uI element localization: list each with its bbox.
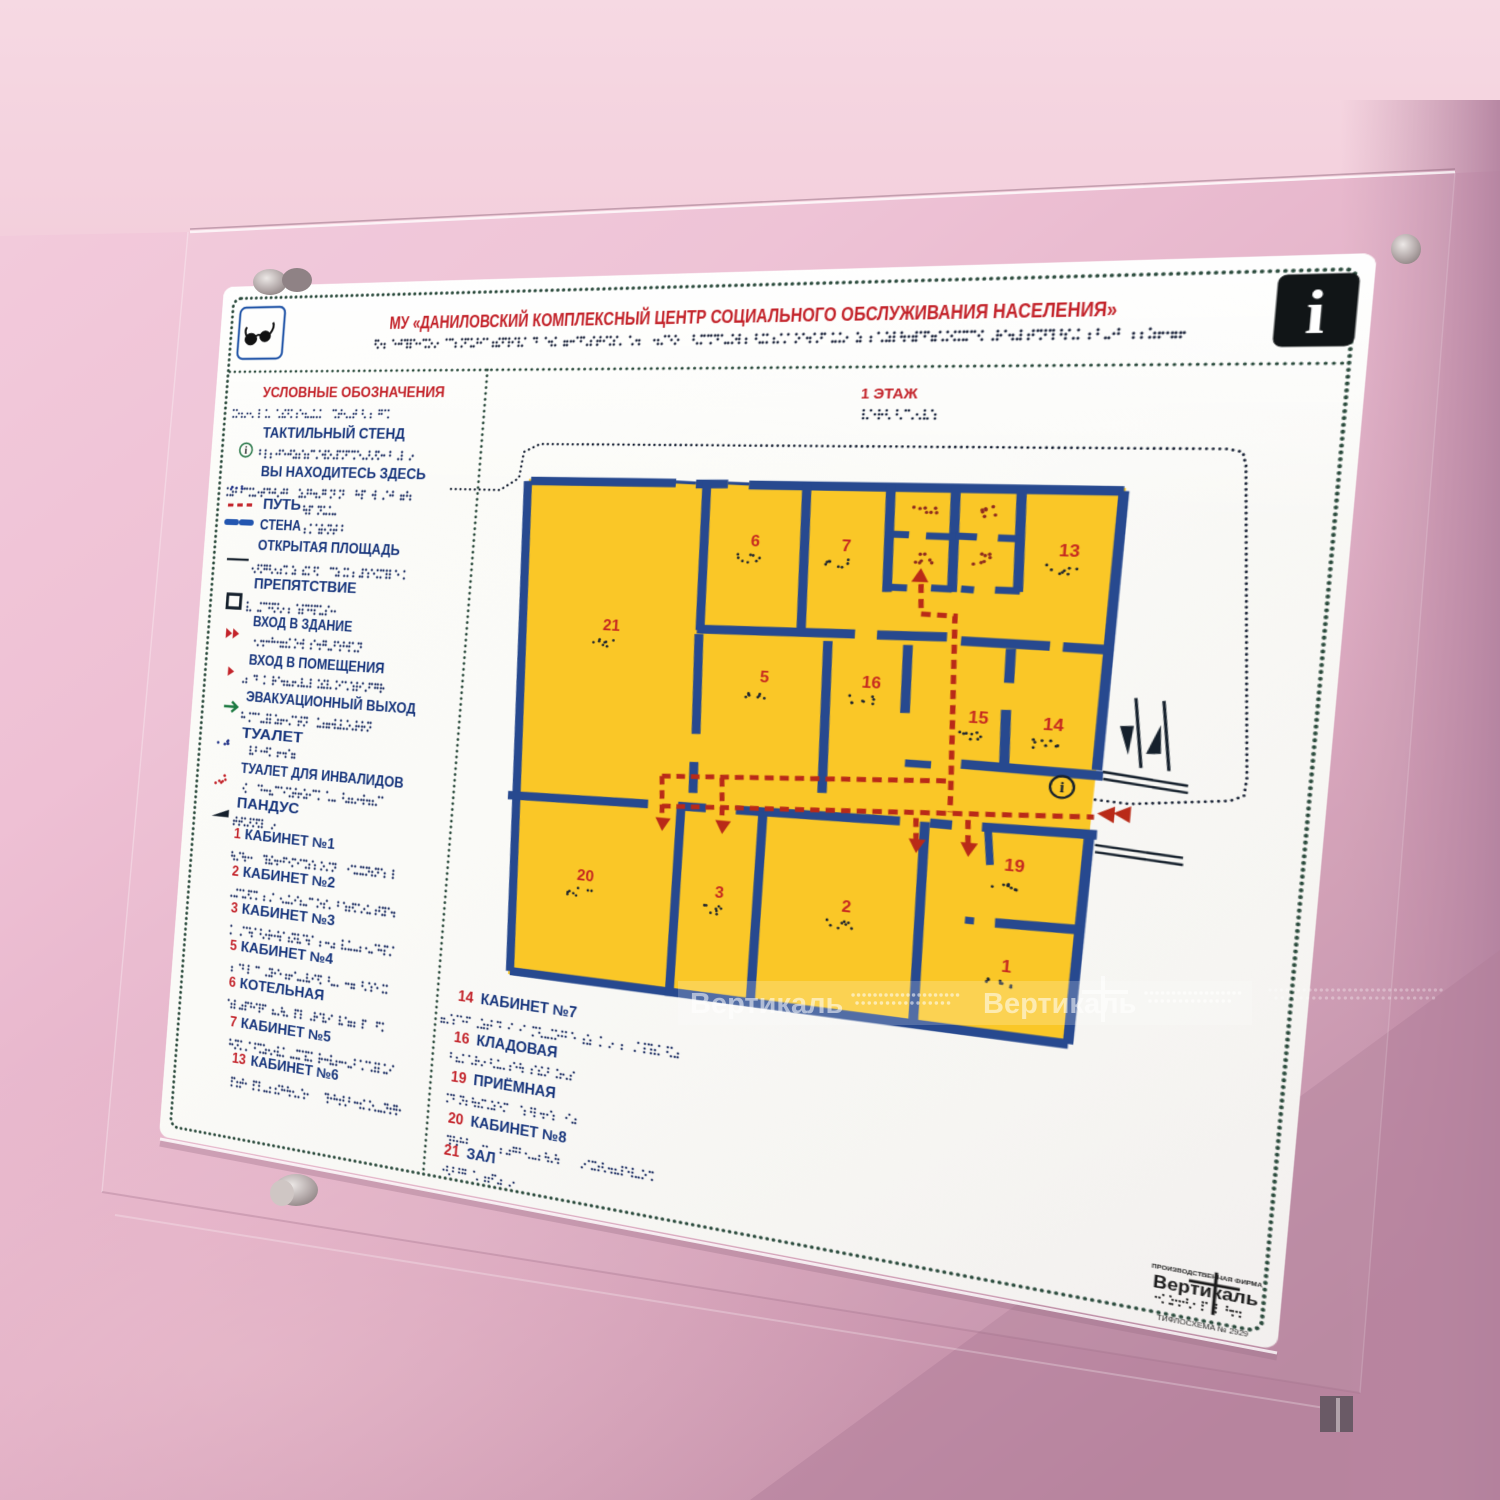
svg-text:Вертикаль: Вертикаль <box>690 988 843 1020</box>
